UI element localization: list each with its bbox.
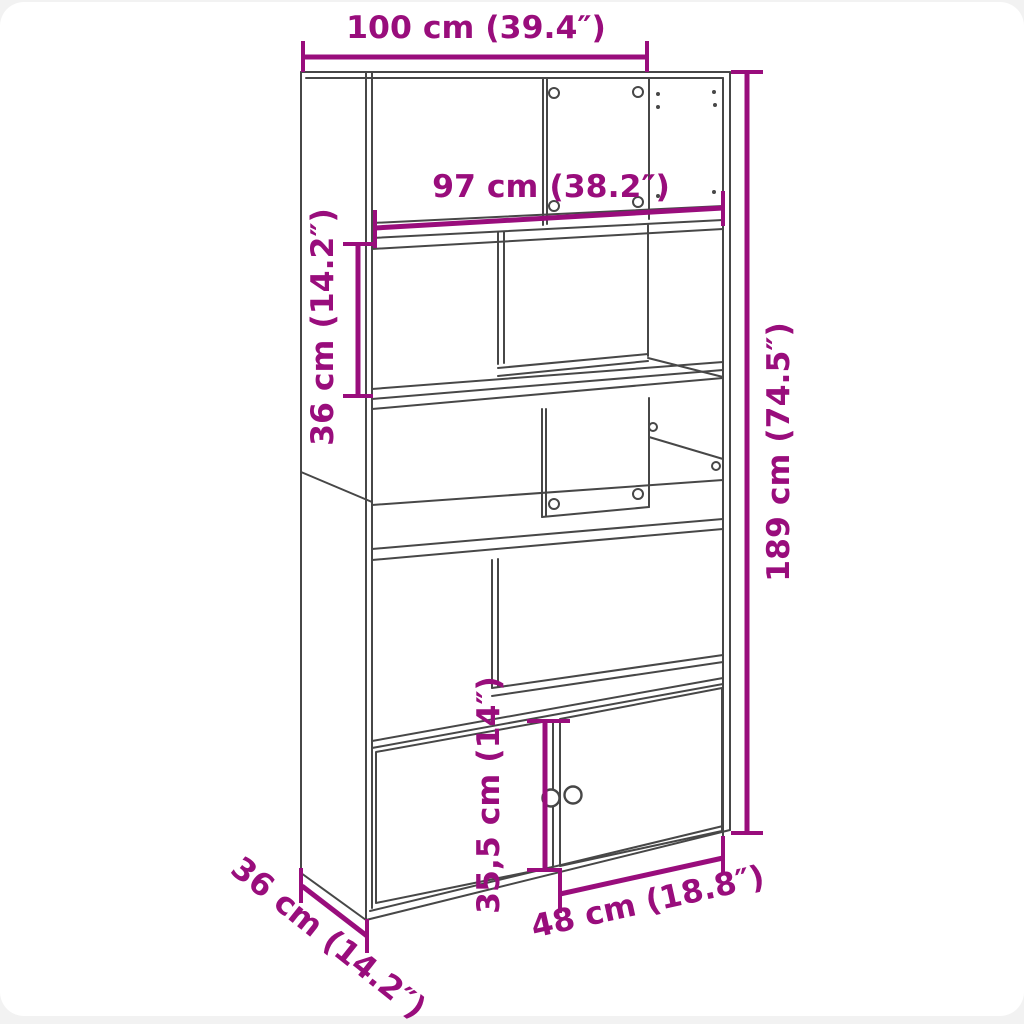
shelf-width-label: 97 cm (38.2″) bbox=[432, 169, 670, 205]
diagram-svg: 100 cm (39.4″) 97 cm (38.2″) 36 cm (14.2… bbox=[0, 0, 1024, 1024]
screw-hole bbox=[549, 88, 559, 98]
pin-hole bbox=[656, 92, 660, 96]
screw-hole bbox=[549, 499, 559, 509]
image-canvas bbox=[0, 2, 1024, 1016]
screw-hole bbox=[649, 423, 657, 431]
overall-height-label: 189 cm (74.5″) bbox=[761, 322, 797, 582]
right-door-handle bbox=[565, 787, 582, 804]
bookcase-dimension-diagram: 100 cm (39.4″) 97 cm (38.2″) 36 cm (14.2… bbox=[0, 0, 1024, 1024]
pin-hole bbox=[712, 190, 716, 194]
screw-hole bbox=[633, 489, 643, 499]
screw-hole bbox=[633, 87, 643, 97]
screw-hole bbox=[712, 462, 720, 470]
compartment-height-label: 36 cm (14.2″) bbox=[305, 208, 341, 446]
pin-hole bbox=[713, 103, 717, 107]
overall-width-label: 100 cm (39.4″) bbox=[346, 10, 606, 46]
door-height-label: 35,5 cm (14″) bbox=[471, 676, 507, 914]
pin-hole bbox=[656, 105, 660, 109]
pin-hole bbox=[712, 90, 716, 94]
